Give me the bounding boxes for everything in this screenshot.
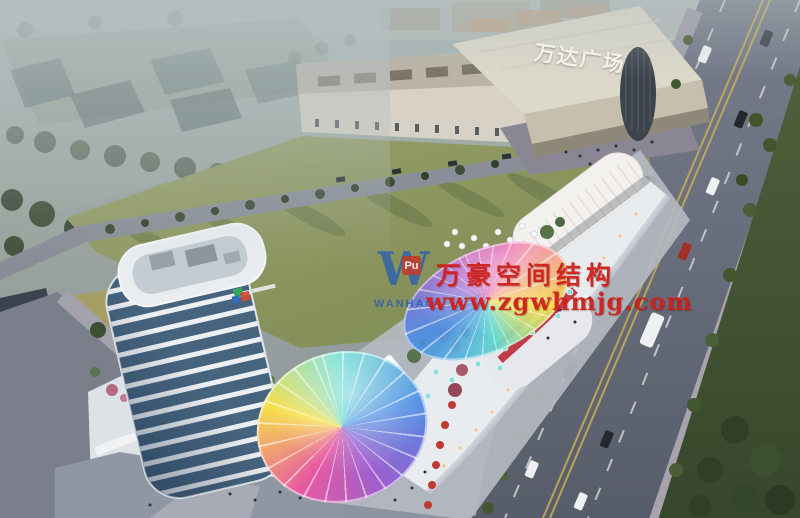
watermark-logo-badge: Pu (402, 256, 421, 275)
rendering-canvas: 万达广场 W Pu WANHAO 万豪空间结构 www.zgwhmjg.com (0, 0, 800, 518)
watermark-url: www.zgwhmjg.com (426, 287, 693, 316)
autumn-tree (448, 383, 462, 397)
watermark: W Pu WANHAO 万豪空间结构 www.zgwhmjg.com (370, 250, 670, 322)
autumn-tree (456, 364, 468, 376)
sky-haze (0, 0, 800, 80)
